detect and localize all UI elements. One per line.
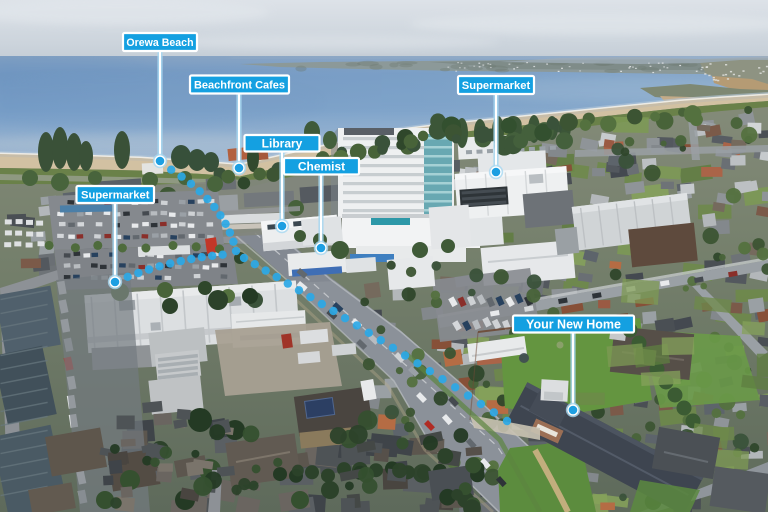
svg-text:Beachfront Cafes: Beachfront Cafes (194, 79, 285, 91)
svg-text:Supermarket: Supermarket (81, 190, 150, 202)
svg-text:Chemist: Chemist (298, 160, 345, 174)
svg-text:Your New Home: Your New Home (526, 318, 621, 332)
svg-text:Supermarket: Supermarket (462, 80, 531, 92)
svg-text:Library: Library (262, 137, 303, 151)
svg-text:Orewa Beach: Orewa Beach (126, 37, 193, 49)
